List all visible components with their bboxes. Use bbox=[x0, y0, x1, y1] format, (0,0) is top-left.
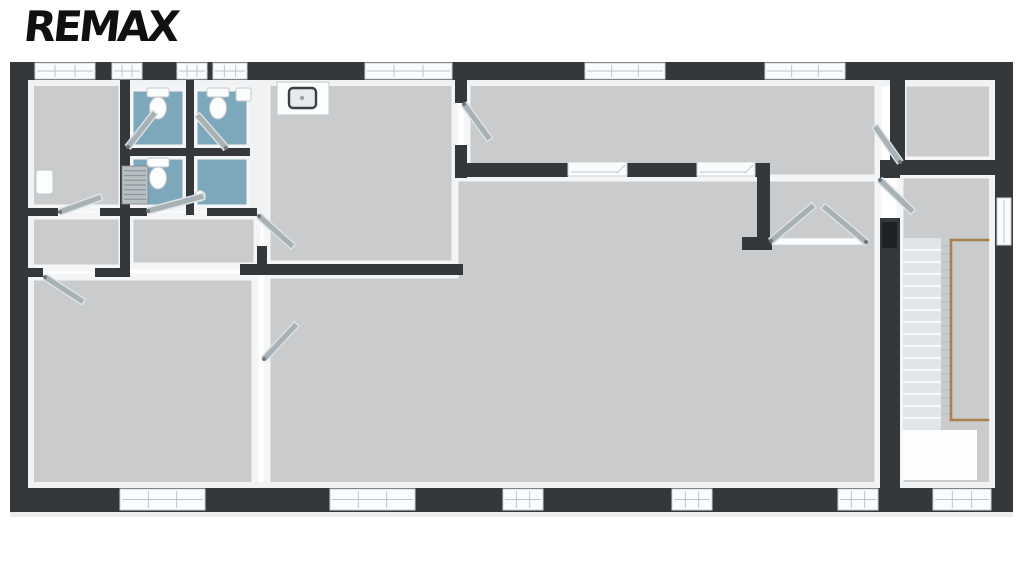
building-shadow bbox=[10, 512, 1013, 517]
toilet-wc-2 bbox=[207, 88, 229, 97]
wall-corridor-south-b bbox=[95, 268, 130, 277]
wall-vestibule-west bbox=[757, 163, 770, 243]
wall-kitchen-east-b bbox=[455, 145, 467, 178]
wall-panel-box bbox=[36, 170, 53, 194]
toilet-wc-1 bbox=[147, 88, 169, 97]
stair-void bbox=[903, 430, 977, 480]
wall-office-south-a bbox=[10, 208, 58, 216]
wall-kitchen-south bbox=[240, 264, 463, 275]
wall-face-top bbox=[28, 80, 995, 86]
wall-corridor-south-a bbox=[10, 268, 43, 277]
floor-top-right-room bbox=[903, 83, 993, 160]
wall-wc-south-b bbox=[207, 208, 257, 216]
floor-corridor-left bbox=[28, 216, 122, 268]
wall-wc-divider-v bbox=[186, 80, 194, 215]
wall-north-room-south-a bbox=[467, 163, 568, 177]
hand-basin-wc-2 bbox=[236, 88, 251, 101]
kitchen-faucet bbox=[300, 96, 304, 100]
outer-wall-left bbox=[10, 62, 28, 512]
wall-face-right bbox=[989, 80, 995, 488]
floor-corridor bbox=[130, 216, 257, 266]
double-door-threshold bbox=[772, 238, 866, 245]
outer-wall-top bbox=[10, 62, 1013, 80]
wall-wc-east-face bbox=[250, 80, 267, 215]
toilet-wc-3 bbox=[147, 158, 169, 167]
wall-face-left bbox=[28, 80, 34, 488]
floor-room-bottom-left bbox=[28, 277, 255, 488]
wall-top-right-south bbox=[890, 160, 1013, 175]
door-leaf-closed bbox=[882, 222, 897, 248]
wall-face-bottom bbox=[28, 482, 995, 488]
wall-wc-divider-h bbox=[120, 148, 250, 156]
wall-north-room-south-b bbox=[627, 163, 697, 177]
floorplan-render: REMAX bbox=[0, 0, 1024, 576]
wall-wc-south-a bbox=[120, 208, 147, 216]
wall-corridor-east bbox=[257, 246, 267, 266]
floorplan-canvas bbox=[0, 0, 1024, 576]
sliding-partition-1 bbox=[568, 162, 627, 176]
wall-stair-hall-west-b bbox=[880, 218, 900, 488]
wall-kitchen-east-a bbox=[455, 80, 467, 103]
outer-wall-right bbox=[995, 62, 1013, 512]
remax-logo: REMAX bbox=[22, 4, 180, 50]
wall-vestibule-stub bbox=[742, 237, 772, 250]
sliding-partition-2 bbox=[697, 162, 755, 176]
